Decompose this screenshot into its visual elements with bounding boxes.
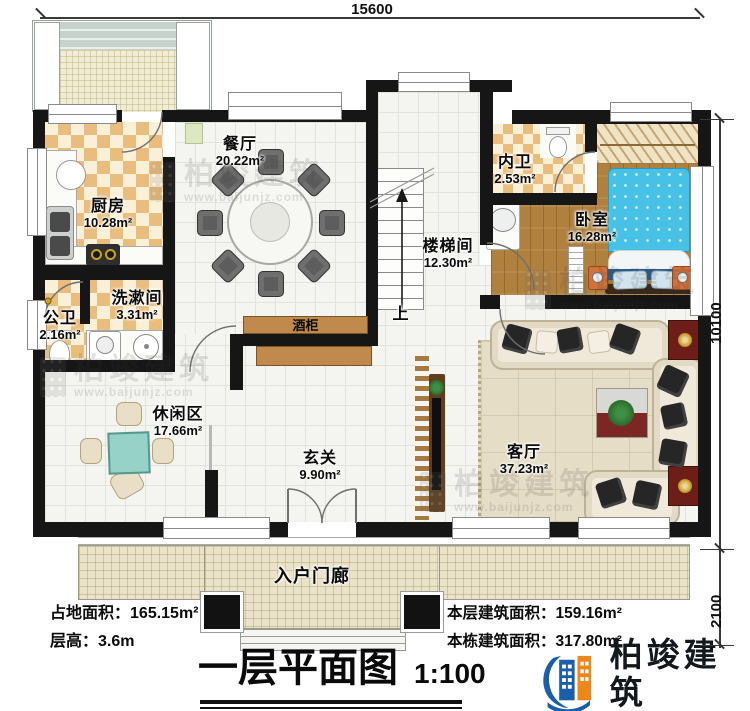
stats-left: 占地面积： 165.15m² 层高： 3.6m bbox=[50, 600, 199, 656]
room-label-porch: 入户门廊 bbox=[252, 566, 372, 586]
room-name: 休闲区 bbox=[118, 406, 238, 424]
door-arc-suite-living bbox=[500, 309, 545, 354]
stairs-up-label: 上 bbox=[388, 306, 414, 324]
stair-arrow-icon bbox=[396, 188, 408, 202]
room-label-living: 客厅 37.23m² bbox=[464, 444, 584, 476]
room-area: 16.28m² bbox=[532, 230, 652, 245]
stat-label: 占地面积： bbox=[50, 600, 130, 628]
drawing-scale: 1:100 bbox=[414, 659, 486, 688]
dim-label-right-porch: 2100 bbox=[708, 572, 725, 628]
dim-label-right-main: 10100 bbox=[708, 268, 725, 344]
room-label-leisure: 休闲区 17.66m² bbox=[118, 406, 238, 438]
door-arc-entry-left bbox=[288, 489, 322, 523]
stat-floor-height: 层高： 3.6m bbox=[50, 628, 199, 656]
room-area: 17.66m² bbox=[118, 424, 238, 439]
dim-ext bbox=[700, 119, 734, 120]
door-arc-inner-bath bbox=[555, 152, 595, 192]
stat-label: 本层建筑面积： bbox=[447, 600, 556, 628]
room-area: 12.30m² bbox=[388, 256, 508, 271]
brand-name: 柏竣建筑 bbox=[610, 636, 750, 711]
room-label-inner-bath: 内卫 2.53m² bbox=[473, 154, 557, 186]
dim-ext bbox=[700, 549, 734, 550]
room-label-stairwell: 楼梯间 12.30m² bbox=[388, 238, 508, 270]
room-label-foyer: 玄关 9.90m² bbox=[260, 450, 380, 482]
room-name: 卧室 bbox=[532, 212, 652, 230]
brand-logo: 柏竣建筑 www.baijunjz.com bbox=[536, 636, 750, 711]
room-label-bedroom: 卧室 16.28m² bbox=[532, 212, 652, 244]
stat-land-area: 占地面积： 165.15m² bbox=[50, 600, 199, 628]
dim-label-top: 15600 bbox=[330, 1, 414, 18]
room-area: 9.90m² bbox=[260, 468, 380, 483]
dim-line-right bbox=[719, 120, 721, 648]
room-label-kitchen: 厨房 10.28m² bbox=[48, 198, 168, 230]
floor-plan-canvas: 15600 10100 2100 bbox=[0, 0, 750, 711]
stat-label: 层高： bbox=[50, 628, 98, 656]
title-underline-thick bbox=[200, 700, 462, 704]
title-underline-thin bbox=[200, 707, 462, 709]
room-name: 内卫 bbox=[473, 154, 557, 172]
room-name: 入户门廊 bbox=[252, 566, 372, 586]
room-area: 10.28m² bbox=[48, 216, 168, 231]
room-area: 2.53m² bbox=[473, 172, 557, 187]
stairs-up-text: 上 bbox=[388, 306, 414, 324]
room-name: 洗漱间 bbox=[82, 290, 192, 308]
dim-ext bbox=[700, 645, 734, 646]
door-knob-icon bbox=[45, 298, 51, 304]
door-arc-entry-right bbox=[322, 489, 356, 523]
room-label-public-bath: 公卫 2.16m² bbox=[20, 310, 100, 342]
page-title: 一层平面图 bbox=[198, 648, 398, 688]
room-label-dining: 餐厅 20.22m² bbox=[180, 136, 300, 168]
stat-value: 159.16m² bbox=[556, 600, 622, 628]
stat-value: 3.6m bbox=[98, 628, 134, 656]
title-block: 一层平面图 1:100 bbox=[198, 648, 486, 688]
room-area: 37.23m² bbox=[464, 462, 584, 477]
room-name: 厨房 bbox=[48, 198, 168, 216]
room-name: 玄关 bbox=[260, 450, 380, 468]
room-name: 餐厅 bbox=[180, 136, 300, 154]
door-arc-washroom bbox=[190, 326, 236, 372]
stat-floor-area: 本层建筑面积： 159.16m² bbox=[447, 600, 622, 628]
room-area: 2.16m² bbox=[20, 328, 100, 343]
stat-value: 165.15m² bbox=[130, 600, 199, 628]
brand-logo-icon bbox=[536, 647, 602, 711]
room-name: 客厅 bbox=[464, 444, 584, 462]
room-name: 楼梯间 bbox=[388, 238, 508, 256]
room-name: 公卫 bbox=[20, 310, 100, 328]
room-area: 20.22m² bbox=[180, 154, 300, 169]
door-arc-balcony bbox=[122, 112, 162, 152]
